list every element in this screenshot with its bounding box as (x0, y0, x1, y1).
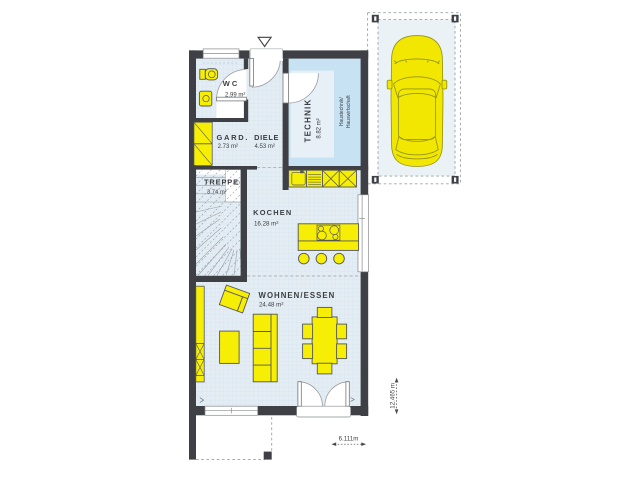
svg-text:GARD.: GARD. (216, 133, 249, 142)
svg-text:TREPPE: TREPPE (204, 178, 239, 187)
svg-text:WC: WC (223, 79, 240, 88)
svg-text:24.48 m²: 24.48 m² (259, 301, 283, 308)
svg-text:WOHNEN/ESSEN: WOHNEN/ESSEN (259, 291, 336, 300)
svg-text:2.73 m²: 2.73 m² (218, 144, 238, 150)
svg-text:16.28 m²: 16.28 m² (254, 220, 278, 227)
svg-text:Hauswirtschaft: Hauswirtschaft (346, 95, 352, 128)
svg-text:3.74 m²: 3.74 m² (207, 190, 227, 196)
svg-text:2.99 m²: 2.99 m² (225, 92, 245, 98)
svg-text:8.82 m²: 8.82 m² (316, 118, 322, 138)
svg-text:4.53 m²: 4.53 m² (255, 144, 275, 150)
svg-text:TECHNIK: TECHNIK (303, 99, 312, 143)
svg-text:KOCHEN: KOCHEN (253, 208, 292, 217)
svg-text:Haustechnik/: Haustechnik/ (339, 97, 345, 127)
svg-text:12.465 m: 12.465 m (390, 383, 397, 409)
svg-text:DIELE: DIELE (254, 133, 279, 142)
svg-text:6.111m: 6.111m (339, 436, 359, 443)
